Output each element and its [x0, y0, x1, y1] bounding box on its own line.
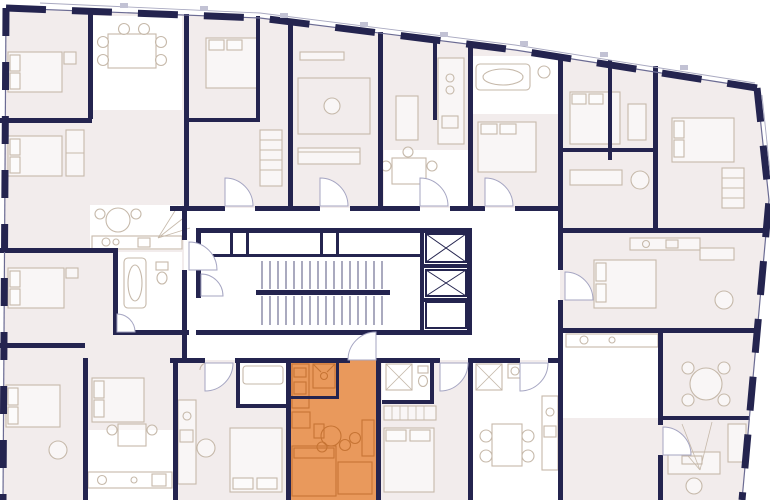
bed — [478, 122, 536, 172]
kitchen-counter — [88, 472, 172, 488]
bed — [6, 385, 60, 427]
shower — [476, 364, 502, 390]
floor-plan-viewer — [0, 0, 770, 500]
floor-plan-canvas — [0, 0, 770, 500]
kitchen-counter — [92, 236, 182, 249]
bed — [92, 378, 144, 422]
bed — [594, 260, 656, 308]
side-table — [324, 98, 340, 114]
bed — [8, 136, 62, 176]
bed — [384, 428, 434, 492]
selected-unit-area[interactable] — [289, 358, 378, 500]
bed — [570, 92, 620, 144]
bathtub — [243, 366, 283, 384]
wardrobe — [66, 130, 84, 176]
stair-rail — [256, 290, 390, 295]
armchair — [197, 439, 215, 457]
bathtub — [124, 258, 146, 308]
kitchen-counter — [542, 396, 558, 470]
wardrobe — [722, 168, 744, 208]
bed — [672, 118, 734, 162]
shower — [386, 364, 412, 390]
bed — [230, 428, 282, 492]
elevator-shaft-x-icon — [426, 270, 466, 296]
armchair — [49, 441, 67, 459]
elevator-shaft-x-icon — [426, 234, 466, 262]
desk-chair — [686, 478, 702, 494]
kitchen-counter — [566, 334, 658, 347]
tv-stand — [300, 52, 344, 60]
sofa — [570, 170, 622, 185]
kitchen-counter — [438, 58, 464, 144]
wardrobe — [384, 406, 436, 420]
bathtub — [476, 64, 530, 90]
elevators — [426, 234, 466, 328]
bed — [206, 38, 258, 88]
kitchen-island — [396, 96, 418, 140]
armchair — [715, 291, 733, 309]
round-table — [631, 171, 649, 189]
sofa — [298, 148, 360, 164]
kitchen-counter — [178, 400, 196, 484]
wardrobe — [260, 130, 282, 186]
sink — [538, 66, 550, 78]
kitchen-counter — [630, 238, 700, 250]
desk — [628, 104, 646, 140]
dresser — [700, 248, 734, 260]
highlighted-unit[interactable] — [289, 358, 378, 500]
service-room — [426, 302, 466, 328]
